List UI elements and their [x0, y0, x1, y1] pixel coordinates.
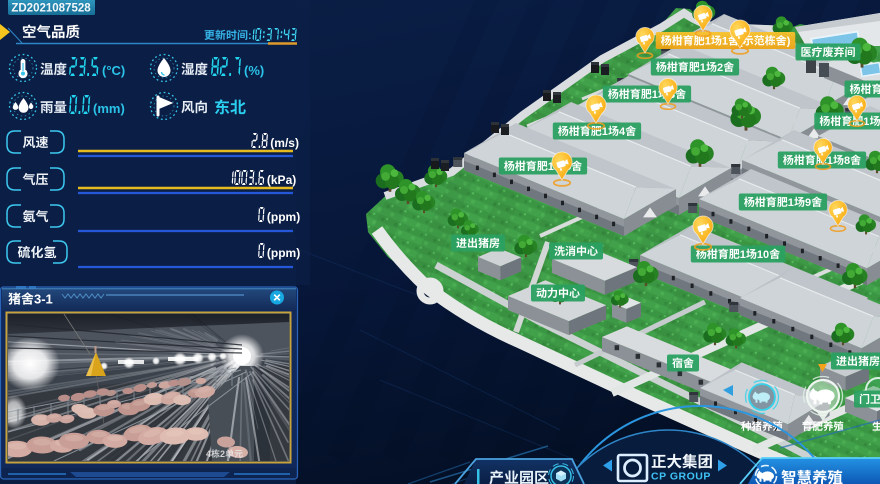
svg-text:(mm): (mm)	[93, 101, 125, 116]
svg-text:2: 2	[717, 62, 723, 74]
svg-text:8: 8	[844, 155, 850, 167]
svg-text:1: 1	[722, 36, 728, 48]
svg-text:10: 10	[757, 249, 769, 261]
svg-text:1: 1	[652, 89, 658, 101]
svg-text:(kPa): (kPa)	[267, 173, 296, 187]
svg-text:(°C): (°C)	[102, 63, 125, 78]
svg-text:4: 4	[206, 449, 211, 459]
svg-text:2: 2	[220, 449, 225, 459]
svg-text:): )	[787, 36, 791, 48]
svg-text:(ppm): (ppm)	[267, 246, 300, 260]
svg-text:(m/s): (m/s)	[270, 136, 299, 150]
svg-text:CP GROUP: CP GROUP	[651, 471, 711, 483]
svg-text:ZD2021087528: ZD2021087528	[11, 3, 91, 15]
svg-text:4: 4	[619, 126, 626, 138]
svg-text:1: 1	[705, 36, 711, 48]
svg-text:1: 1	[788, 197, 794, 209]
svg-text:(ppm): (ppm)	[267, 210, 300, 224]
svg-text::: :	[248, 30, 252, 42]
svg-text:3-1: 3-1	[34, 292, 53, 307]
svg-text:1: 1	[740, 249, 746, 261]
svg-text:(%): (%)	[244, 63, 264, 78]
svg-text:1: 1	[700, 62, 706, 74]
svg-text:9: 9	[805, 197, 811, 209]
